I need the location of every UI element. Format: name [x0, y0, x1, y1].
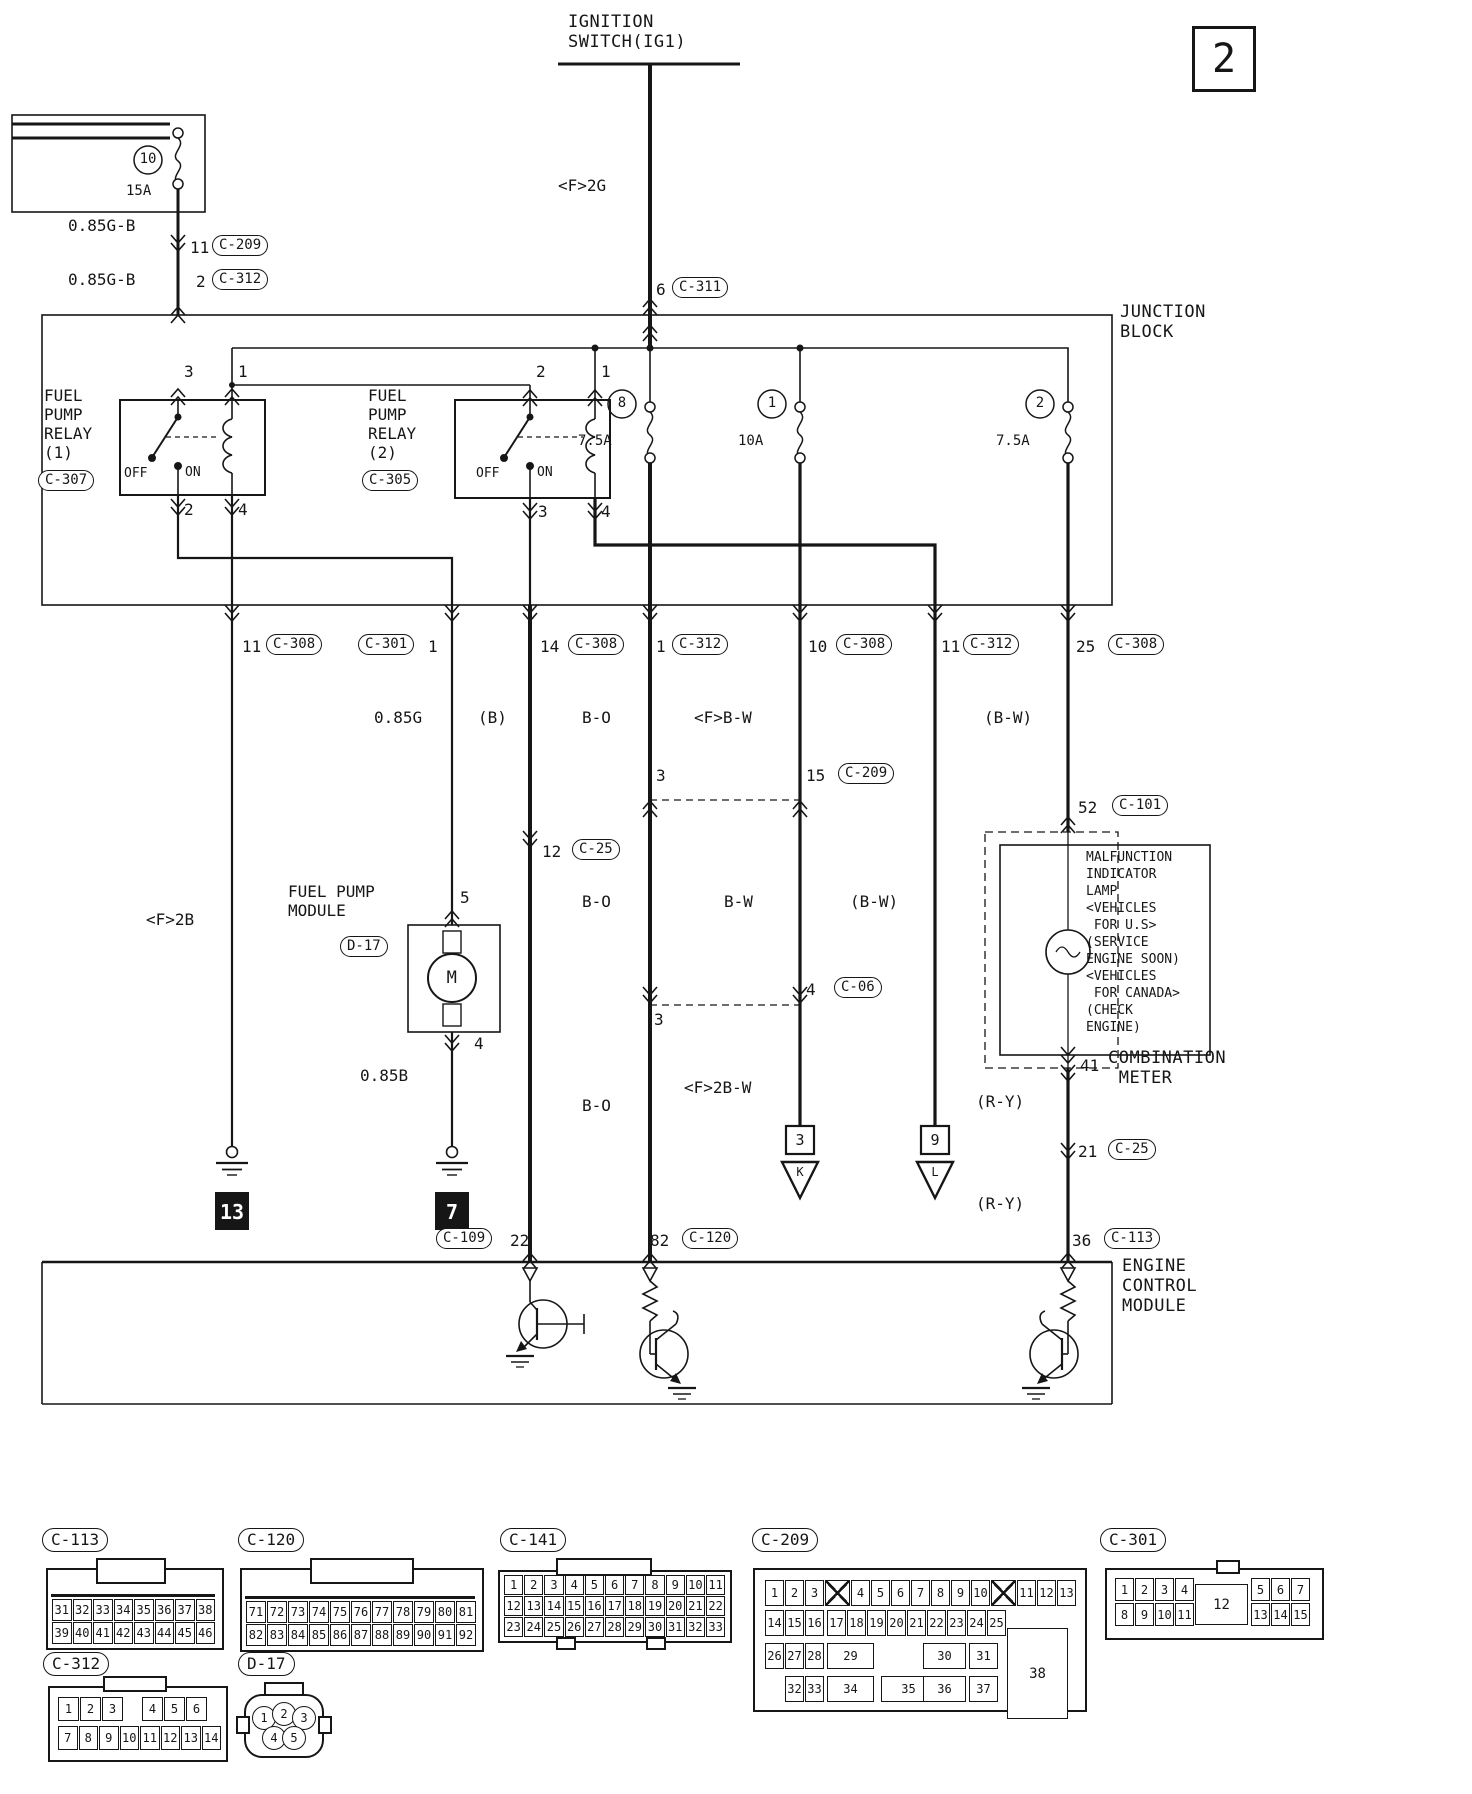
- pinout-label: C-312: [43, 1652, 109, 1676]
- pin-cell: 10: [1155, 1603, 1174, 1626]
- pin-cell: 5: [164, 1697, 185, 1721]
- fuse-8-number: 8: [608, 394, 636, 413]
- pin-cell: 22: [927, 1610, 946, 1636]
- ecm-outline: [42, 1262, 1112, 1404]
- pin-cell: 38: [196, 1599, 216, 1621]
- pin-cell: 13: [524, 1596, 543, 1616]
- b2-wire-lower: 0.85B: [360, 1066, 408, 1085]
- pin-cell: 9: [99, 1726, 119, 1750]
- pin-cell: 24: [524, 1617, 543, 1637]
- pin-cell: 30: [923, 1643, 966, 1669]
- pin-cell: 35: [134, 1599, 154, 1621]
- b7-link-pin: 21: [1078, 1142, 1097, 1161]
- ecm-entry-triangles: [523, 1268, 1075, 1281]
- b3-ecm-pin: 22: [510, 1231, 529, 1250]
- pin-cell: 13: [1251, 1603, 1270, 1626]
- pin-cell: 10: [120, 1726, 140, 1750]
- page-number-box: 2: [1192, 26, 1256, 92]
- b4-wire-mid: B-O: [582, 892, 611, 911]
- blocked-cavity: [825, 1580, 850, 1606]
- pin-cell: 19: [645, 1596, 664, 1616]
- cross1-pin-right: 15: [806, 766, 825, 785]
- pin-11: 11: [190, 238, 209, 257]
- pin-cell: 16: [805, 1610, 824, 1636]
- relay2-pin-4: 4: [601, 502, 611, 521]
- junction-block-outline: [42, 315, 1112, 605]
- pin-cell: 45: [175, 1622, 195, 1644]
- pin-cell: 11: [1175, 1603, 1194, 1626]
- pin-cell: 42: [114, 1622, 134, 1644]
- meter-pin-in: 52: [1078, 798, 1097, 817]
- pin-cell: 36: [155, 1599, 175, 1621]
- pin-cell: 78: [393, 1601, 413, 1623]
- pin-cell: 17: [605, 1596, 624, 1616]
- pin-cell: 91: [435, 1624, 455, 1646]
- pin-cell: 3: [102, 1697, 123, 1721]
- relay2-pin-1: 1: [601, 362, 611, 381]
- b3-link-pin: 12: [542, 842, 561, 861]
- pin-cell: 7: [1291, 1578, 1310, 1601]
- b4-ecm-connector: C-120: [682, 1228, 738, 1249]
- b7-link-connector: C-25: [1108, 1139, 1156, 1160]
- fuse-2-amp: 7.5A: [996, 432, 1030, 451]
- pin-cell: 11: [140, 1726, 160, 1750]
- pin-cell: 26: [565, 1617, 584, 1637]
- pin-cell: 6: [1271, 1578, 1290, 1601]
- ecm-transistor-1-icon: [516, 1281, 584, 1352]
- ground-id-7: 7: [435, 1200, 469, 1224]
- pinout-tab: [646, 1637, 666, 1650]
- ref-letter-l: L: [928, 1163, 942, 1182]
- pin-cell: 81: [456, 1601, 476, 1623]
- b5-wire-upper: <F>B-W: [694, 708, 752, 727]
- pin-cell: 15: [785, 1610, 804, 1636]
- meter-conn-in: C-101: [1112, 795, 1168, 816]
- relay2-connector: C-305: [362, 470, 418, 491]
- pin-cell: 3: [805, 1580, 824, 1606]
- b5-connector: C-308: [836, 634, 892, 655]
- pin-cell: 1: [504, 1575, 523, 1595]
- pin-cell: 5: [1251, 1578, 1270, 1601]
- pin-cell: 4: [851, 1580, 870, 1606]
- cross2-pin-left: 3: [654, 1010, 664, 1029]
- pin-cell: 83: [267, 1624, 287, 1646]
- pin-cell: 25: [987, 1610, 1006, 1636]
- relay2-on: ON: [537, 463, 553, 482]
- b1-connector: C-308: [266, 634, 322, 655]
- pump-pin-5: 5: [460, 888, 470, 907]
- pin-cell: 13: [1057, 1580, 1076, 1606]
- cross1-connector: C-209: [838, 763, 894, 784]
- pin-cell: 30: [645, 1617, 664, 1637]
- pin-cell: 32: [686, 1617, 705, 1637]
- pin-cell: 25: [544, 1617, 563, 1637]
- pin-cell: 33: [805, 1676, 824, 1702]
- ref-letter-k: K: [793, 1163, 807, 1182]
- ground-id-boxes: [215, 1192, 469, 1230]
- relay1-connector: C-307: [38, 470, 94, 491]
- pin-cell: 23: [504, 1617, 523, 1637]
- wiring-diagram-page: IGNITION SWITCH(IG1) <F>2G 6 C-311 2 10 …: [0, 0, 1472, 1794]
- pin-cell: 14: [1271, 1603, 1290, 1626]
- pin-cell: 90: [414, 1624, 434, 1646]
- pin-cell: 21: [686, 1596, 705, 1616]
- pin-cell: 8: [1115, 1603, 1134, 1626]
- pin-cell: 76: [351, 1601, 371, 1623]
- pin-cell: 24: [967, 1610, 986, 1636]
- pinout-label: C-209: [752, 1528, 818, 1552]
- pin-cell: 5: [871, 1580, 890, 1606]
- pin-cell: 11: [1017, 1580, 1036, 1606]
- pin-cell: 88: [372, 1624, 392, 1646]
- fuse-10-amp: 15A: [126, 182, 151, 201]
- relay1-pin-3: 3: [184, 362, 194, 381]
- pinout-box: 123489101112567131415: [1105, 1568, 1324, 1640]
- b3-ecm-connector: C-109: [436, 1228, 492, 1249]
- pin-cell: 21: [907, 1610, 926, 1636]
- pin-cell: 37: [969, 1676, 998, 1702]
- pin-cell: 15: [1291, 1603, 1310, 1626]
- pinout-tab: [96, 1558, 166, 1584]
- pin-cell: 27: [785, 1643, 804, 1669]
- pin-cell: 27: [585, 1617, 604, 1637]
- pin-cell: 6: [605, 1575, 624, 1595]
- pin-6: 6: [656, 280, 666, 299]
- pin-cell: 82: [246, 1624, 266, 1646]
- relay1-name: FUEL PUMP RELAY (1): [44, 386, 92, 462]
- pin-cell: 4: [565, 1575, 584, 1595]
- cross2-pin-right: 4: [806, 980, 816, 999]
- pin-cell: 33: [93, 1599, 113, 1621]
- pin-cell: 7: [911, 1580, 930, 1606]
- b1-pin: 11: [242, 637, 261, 656]
- pin-cell: 26: [765, 1643, 784, 1669]
- b6-pin: 11: [941, 637, 960, 656]
- ground-icon: [216, 1147, 248, 1176]
- fuse-10-icon: [173, 128, 183, 189]
- wire-label-f2g: <F>2G: [558, 176, 606, 195]
- pin-cell: 85: [309, 1624, 329, 1646]
- pin-cell: 31: [969, 1643, 998, 1669]
- b5-pin: 10: [808, 637, 827, 656]
- pin-cell-12: 12: [1195, 1584, 1248, 1625]
- pin-cell: 10: [686, 1575, 705, 1595]
- wire-label-085gb-1: 0.85G-B: [68, 216, 135, 235]
- ecm-title: ENGINE CONTROL MODULE: [1122, 1256, 1197, 1316]
- pin-cell: 11: [706, 1575, 725, 1595]
- pinout-box: 31323334353637383940414243444546: [46, 1568, 224, 1650]
- pin-cell: 19: [867, 1610, 886, 1636]
- pin-cell: 10: [971, 1580, 990, 1606]
- pin-cell: 2: [785, 1580, 804, 1606]
- pin-cell: 34: [114, 1599, 134, 1621]
- pin-cell: 28: [805, 1643, 824, 1669]
- relay1-pin-4: 4: [238, 500, 248, 519]
- pin-cell: 17: [827, 1610, 846, 1636]
- pin-cell: 20: [887, 1610, 906, 1636]
- b5-wire-lower: <F>2B-W: [684, 1078, 751, 1097]
- relay2-pin-2: 2: [536, 362, 546, 381]
- jb-lower-wires: [178, 463, 1068, 605]
- pin-cell: 9: [951, 1580, 970, 1606]
- pinout-ear: [318, 1716, 332, 1734]
- pin-cell: 9: [1135, 1603, 1154, 1626]
- pin-cell: 4: [142, 1697, 163, 1721]
- pinout-ear: [236, 1716, 250, 1734]
- relay1-off: OFF: [124, 464, 147, 483]
- pump-pin-4: 4: [474, 1034, 484, 1053]
- pinout-tab: [556, 1558, 652, 1576]
- pin-cell: 36: [923, 1676, 966, 1702]
- b7-wire-upper: (B-W): [984, 708, 1032, 727]
- relay2-off: OFF: [476, 464, 499, 483]
- b4-pin: 1: [656, 637, 666, 656]
- pin-cell: 34: [827, 1676, 874, 1702]
- pin-cell: 31: [666, 1617, 685, 1637]
- pinout-tab: [556, 1637, 576, 1650]
- ref-box-3: 3: [786, 1131, 814, 1150]
- pin-cell: 23: [947, 1610, 966, 1636]
- pin-cell: 72: [267, 1601, 287, 1623]
- fuse-2-number: 2: [1026, 394, 1054, 413]
- pin-cell: 12: [504, 1596, 523, 1616]
- pin-cell: 39: [52, 1622, 72, 1644]
- pinout-label: C-141: [500, 1528, 566, 1552]
- ecm-transistor-3-icon: [1030, 1281, 1078, 1384]
- mil-text-block: MALFUNCTION INDICATOR LAMP <VEHICLES FOR…: [1086, 849, 1180, 1036]
- pin-cell: 22: [706, 1596, 725, 1616]
- pin-cell: 8: [645, 1575, 664, 1595]
- pin-cell: 14: [202, 1726, 222, 1750]
- fuse-10-number: 10: [134, 150, 162, 169]
- b1-wire: <F>2B: [146, 910, 194, 929]
- b5-wire-mid: B-W: [724, 892, 753, 911]
- pin-cell: 4: [1175, 1578, 1194, 1601]
- relay2-pin-3: 3: [538, 502, 548, 521]
- cross1-pin-left: 3: [656, 766, 666, 785]
- pin-cell: 18: [847, 1610, 866, 1636]
- pin-cell: 18: [625, 1596, 644, 1616]
- pin-cell: 2: [524, 1575, 543, 1595]
- ground-id-13: 13: [215, 1200, 249, 1224]
- pin-cell: 41: [93, 1622, 113, 1644]
- motor-letter: M: [443, 968, 461, 988]
- b7-ecm-pin: 36: [1072, 1231, 1091, 1250]
- connector-c209-ref: C-209: [212, 235, 268, 256]
- ground-icon: [506, 1356, 534, 1367]
- fuse-8-amp: 7.5A: [578, 432, 612, 451]
- connector-c312-ref: C-312: [212, 269, 268, 290]
- pin-2: 2: [196, 272, 206, 291]
- pin-cell: 79: [414, 1601, 434, 1623]
- ignition-switch-wire: [558, 64, 740, 348]
- junction-block-bus: [232, 348, 1068, 402]
- pin-cell: 32: [785, 1676, 804, 1702]
- b7-wire-ry-2: (R-Y): [976, 1194, 1024, 1213]
- b4-wire-upper: B-O: [582, 708, 611, 727]
- fuel-pump-connector: D-17: [340, 936, 388, 957]
- pin-cell: 80: [435, 1601, 455, 1623]
- ground-icon: [1022, 1388, 1050, 1399]
- pin-cell: 6: [186, 1697, 207, 1721]
- pin-cell: 74: [309, 1601, 329, 1623]
- pinout-label: C-113: [42, 1528, 108, 1552]
- pin-cell: 75: [330, 1601, 350, 1623]
- pin-cell: 92: [456, 1624, 476, 1646]
- pin-cell: 40: [73, 1622, 93, 1644]
- pin-cell: 14: [765, 1610, 784, 1636]
- pin-cell: 44: [155, 1622, 175, 1644]
- pin-cell: 1: [1115, 1578, 1134, 1601]
- b2-connector: C-301: [358, 634, 414, 655]
- pinout-box: 1234567891011121314151617181920212223242…: [753, 1568, 1087, 1712]
- pinout-tab: [1216, 1560, 1240, 1574]
- pin-cell: 3: [544, 1575, 563, 1595]
- pin-cell: 43: [134, 1622, 154, 1644]
- b3-link-connector: C-25: [572, 839, 620, 860]
- b4-connector: C-312: [672, 634, 728, 655]
- pin-cell: 3: [1155, 1578, 1174, 1601]
- pin-cell: 71: [246, 1601, 266, 1623]
- pinout-label: C-301: [1100, 1528, 1166, 1552]
- pin-cell: 14: [544, 1596, 563, 1616]
- pin-cell: 86: [330, 1624, 350, 1646]
- page-number: 2: [1212, 36, 1236, 82]
- pin-cell: 9: [666, 1575, 685, 1595]
- pinout-box: 1234567891011121314: [48, 1686, 228, 1762]
- pin-cell: 84: [288, 1624, 308, 1646]
- fuel-pump-module-title: FUEL PUMP MODULE: [288, 882, 375, 920]
- b3-pin: 14: [540, 637, 559, 656]
- fuse-1-amp: 10A: [738, 432, 763, 451]
- meter-pin-out: 41: [1080, 1056, 1099, 1075]
- b4-wire-lower: B-O: [582, 1096, 611, 1115]
- connector-c311: C-311: [672, 277, 728, 298]
- pin-cell: 12: [1037, 1580, 1056, 1606]
- pinout-tab: [310, 1558, 414, 1584]
- pin-cell: 46: [196, 1622, 216, 1644]
- pin-cell: 12: [161, 1726, 181, 1750]
- b7-wire-ry-1: (R-Y): [976, 1092, 1024, 1111]
- b7-connector: C-308: [1108, 634, 1164, 655]
- pin-cell: 37: [175, 1599, 195, 1621]
- ground-icon: [668, 1388, 696, 1399]
- b7-pin: 25: [1076, 637, 1095, 656]
- b3-connector: C-308: [568, 634, 624, 655]
- pinout-label: C-120: [238, 1528, 304, 1552]
- pin-cell: 29: [625, 1617, 644, 1637]
- pin-cell: 2: [80, 1697, 101, 1721]
- pin-cell: 89: [393, 1624, 413, 1646]
- pin-cell: 7: [58, 1726, 78, 1750]
- pin-cell: 5: [585, 1575, 604, 1595]
- relay2-name: FUEL PUMP RELAY (2): [368, 386, 416, 462]
- ref-box-9: 9: [921, 1131, 949, 1150]
- b7-ecm-connector: C-113: [1104, 1228, 1160, 1249]
- cross2-connector: C-06: [834, 977, 882, 998]
- b2-wire-upper: 0.85G: [374, 708, 422, 727]
- b2-pin: 1: [428, 637, 438, 656]
- bus-junction-dots: [229, 345, 804, 389]
- ecm-transistor-2-icon: [640, 1281, 688, 1384]
- pinout-tab: [103, 1676, 167, 1692]
- pin-cell: 1: [765, 1580, 784, 1606]
- pinout-label: D-17: [238, 1652, 295, 1676]
- fuse-1-number: 1: [758, 394, 786, 413]
- pin-cell: 28: [605, 1617, 624, 1637]
- pin-cell: 13: [181, 1726, 201, 1750]
- ignition-switch-title: IGNITION SWITCH(IG1): [568, 12, 686, 52]
- blocked-cavity: [991, 1580, 1016, 1606]
- pin-cell: 6: [891, 1580, 910, 1606]
- relay1-pin-1: 1: [238, 362, 248, 381]
- pinout-box: 7172737475767778798081828384858687888990…: [240, 1568, 484, 1652]
- pin-cell: 20: [666, 1596, 685, 1616]
- pin-cell: 8: [79, 1726, 99, 1750]
- combination-meter-title: COMBINATION METER: [1108, 1048, 1226, 1088]
- pin-cell: 32: [73, 1599, 93, 1621]
- pin-cell: 15: [565, 1596, 584, 1616]
- wire-label-085gb-2: 0.85G-B: [68, 270, 135, 289]
- junction-block-title: JUNCTION BLOCK: [1120, 302, 1206, 342]
- b4-ecm-pin: 82: [650, 1231, 669, 1250]
- pin-cell: 8: [931, 1580, 950, 1606]
- relay1-on: ON: [185, 463, 201, 482]
- pin-cell: 73: [288, 1601, 308, 1623]
- b6-wire: (B-W): [850, 892, 898, 911]
- relay1-pin-2: 2: [184, 500, 194, 519]
- pin-cell: 16: [585, 1596, 604, 1616]
- pin-cell: 87: [351, 1624, 371, 1646]
- ground-icon: [436, 1147, 468, 1176]
- pinout-band: [51, 1594, 215, 1597]
- pin-cell: 7: [625, 1575, 644, 1595]
- pin-cell-38: 38: [1007, 1628, 1068, 1719]
- pin-cell: 29: [827, 1643, 874, 1669]
- pin-cell: 77: [372, 1601, 392, 1623]
- b3-wire-upper: (B): [478, 708, 507, 727]
- pin-cell: 33: [706, 1617, 725, 1637]
- pin-circle: 5: [282, 1726, 306, 1750]
- pinout-box: 1234567891011121314151617181920212223242…: [498, 1570, 732, 1643]
- pinout-band: [245, 1596, 475, 1599]
- pin-cell: 2: [1135, 1578, 1154, 1601]
- pin-cell: 31: [52, 1599, 72, 1621]
- b6-connector: C-312: [963, 634, 1019, 655]
- pin-cell: 1: [58, 1697, 79, 1721]
